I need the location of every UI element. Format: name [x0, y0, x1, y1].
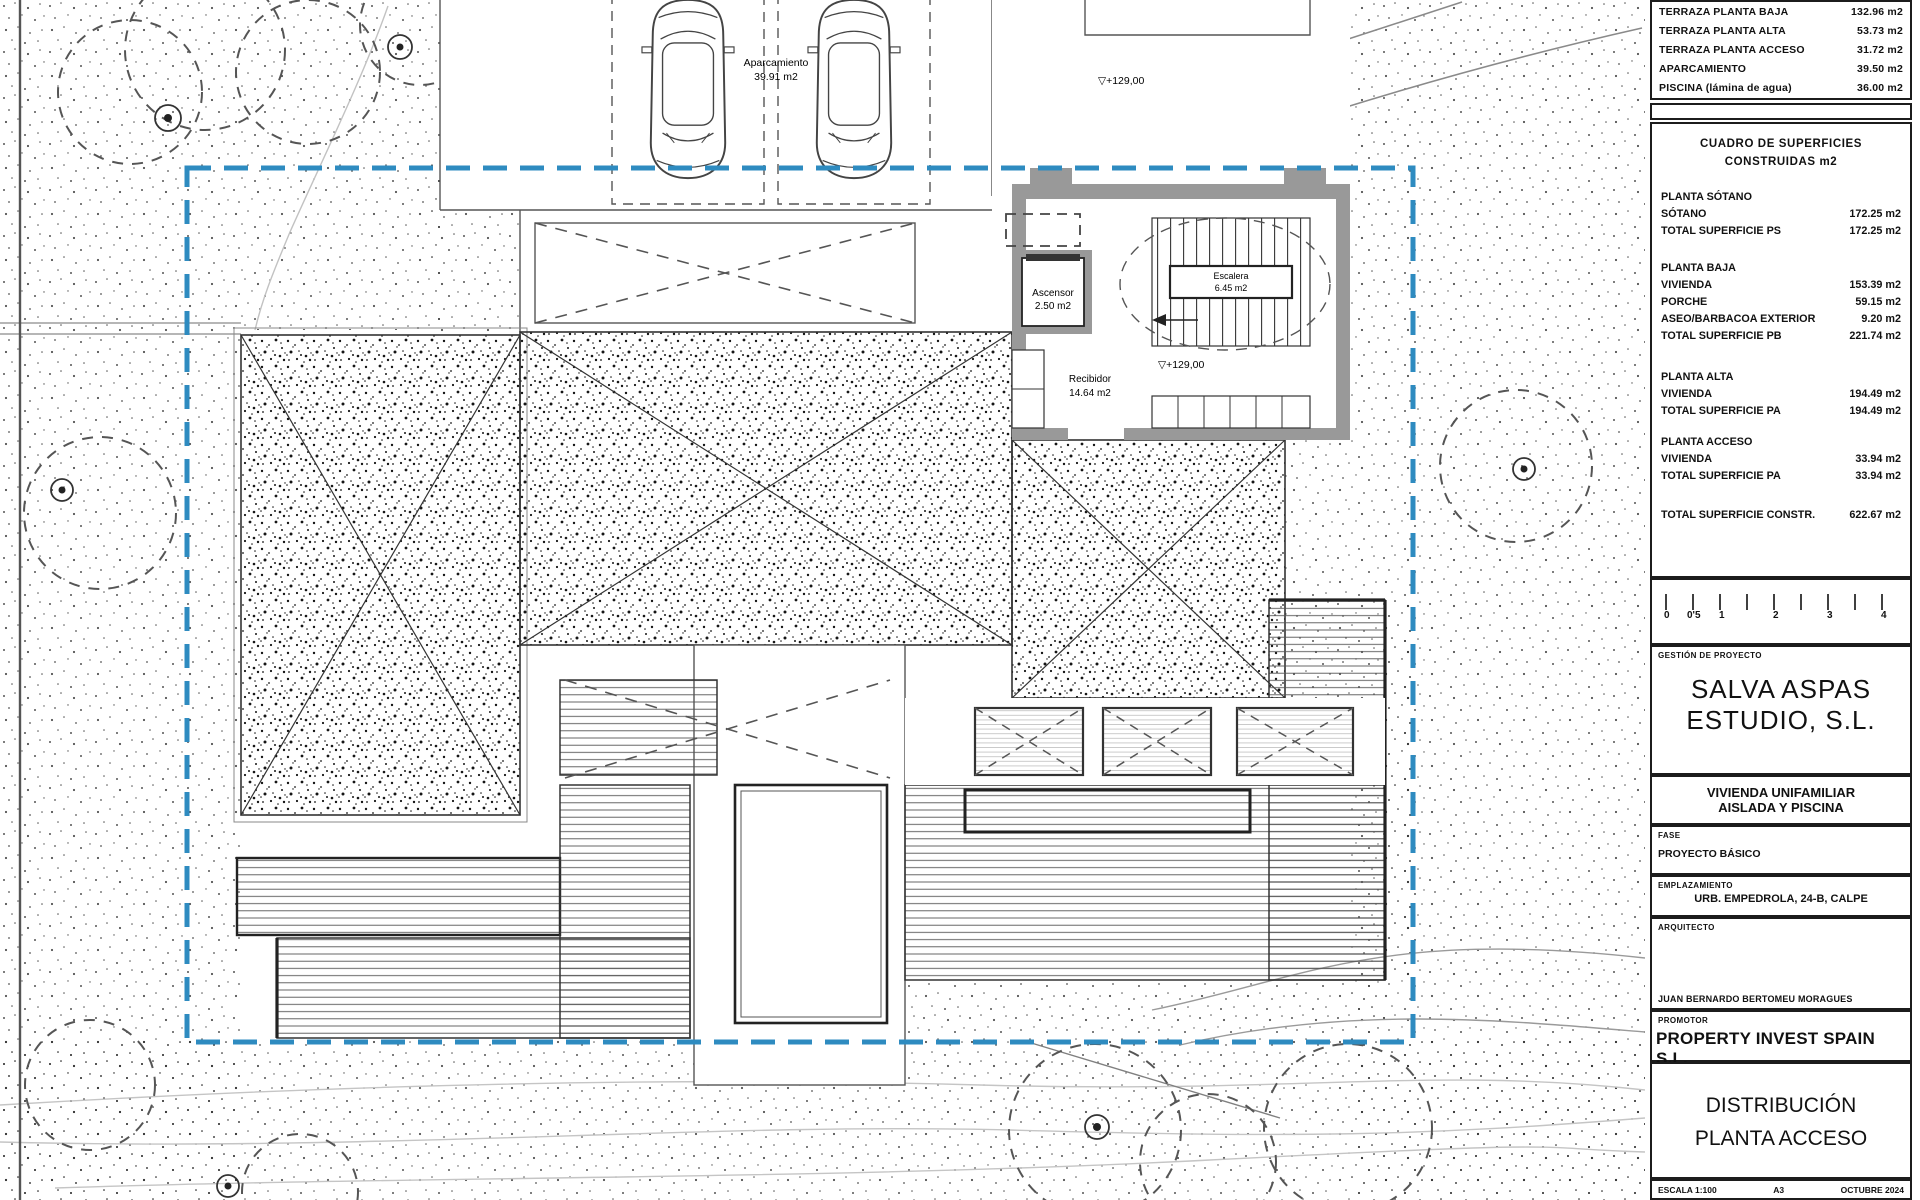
section-header: PLANTA SÓTANO: [1652, 188, 1910, 205]
cuadro-title: CUADRO DE SUPERFICIES: [1652, 138, 1910, 150]
terrace-surface-table: TERRAZA PLANTA BAJA132.96 m2 TERRAZA PLA…: [1650, 0, 1912, 100]
recibidor-label: Recibidor: [1069, 374, 1112, 385]
escalera-label: Escalera: [1213, 271, 1248, 281]
footer-date: OCTUBRE 2024: [1841, 1185, 1904, 1195]
car-top-view-2: [808, 0, 900, 178]
site-plan-svg: Aparcamiento 39.91 m2 ▽+129,00 ▽: [0, 0, 1645, 1200]
location-section: EMPLAZAMIENTO URB. EMPEDROLA, 24-B, CALP…: [1650, 875, 1912, 917]
arquitecto-value: JUAN BERNARDO BERTOMEU MORAGUES: [1658, 994, 1853, 1004]
title-block: TERRAZA PLANTA BAJA132.96 m2 TERRAZA PLA…: [1645, 0, 1920, 1200]
deck-strip-upper: [237, 858, 560, 935]
arquitecto-label: ARQUITECTO: [1652, 919, 1910, 932]
escalera-area: 6.45 m2: [1215, 283, 1248, 293]
section-header: PLANTA ALTA: [1652, 368, 1910, 385]
aparcamiento-area: 39.91 m2: [754, 71, 798, 83]
phase-section: FASE PROYECTO BÁSICO: [1650, 825, 1912, 875]
section-header: PLANTA BAJA: [1652, 259, 1910, 276]
ascensor-area: 2.50 m2: [1035, 301, 1072, 312]
built-surfaces-table: CUADRO DE SUPERFICIES CONSTRUIDAS m2 PLA…: [1650, 122, 1912, 578]
emplazamiento-value: URB. EMPEDROLA, 24-B, CALPE: [1652, 893, 1910, 905]
elevator: Ascensor 2.50 m2: [1014, 250, 1092, 334]
footer-format: A3: [1773, 1185, 1784, 1195]
entrance-block: Ascensor 2.50 m2 Escalera 6.45 m2 ▽+129,…: [1006, 168, 1350, 440]
skylight-row: [905, 698, 1385, 785]
footer-scale: ESCALA 1:100: [1658, 1185, 1717, 1195]
scale-bar: 0 0'5 1 2 3 4: [1650, 578, 1912, 645]
deck-upper-left: [560, 680, 717, 775]
drawing-sheet: Aparcamiento 39.91 m2 ▽+129,00 ▽: [0, 0, 1920, 1200]
site-plan: Aparcamiento 39.91 m2 ▽+129,00 ▽: [0, 0, 1645, 1200]
table-row: PISCINA (lámina de agua)36.00 m2: [1652, 78, 1910, 97]
emplazamiento-label: EMPLAZAMIENTO: [1652, 877, 1910, 890]
table-row: TERRAZA PLANTA ALTA53.73 m2: [1652, 21, 1910, 40]
table-row: TERRAZA PLANTA ACCESO31.72 m2: [1652, 40, 1910, 59]
section-header: PLANTA ACCESO: [1652, 433, 1910, 450]
sheet-title: DISTRIBUCIÓN PLANTA ACCESO: [1650, 1062, 1912, 1179]
car-top-view-1: [642, 0, 734, 178]
sheet-footer: ESCALA 1:100 A3 OCTUBRE 2024: [1650, 1179, 1912, 1200]
table-row: TERRAZA PLANTA BAJA132.96 m2: [1652, 2, 1910, 21]
table-row: APARCAMIENTO39.50 m2: [1652, 59, 1910, 78]
plaza-level-label: ▽+129,00: [1098, 75, 1144, 87]
total-row: TOTAL SUPERFICIE CONSTR.622.67 m2: [1652, 506, 1910, 523]
gestion-label: GESTIÓN DE PROYECTO: [1652, 647, 1910, 660]
roof-block-left: [234, 328, 527, 822]
project-management: GESTIÓN DE PROYECTO SALVA ASPAS ESTUDIO,…: [1650, 645, 1912, 775]
pool: [735, 785, 887, 1023]
architect-section: ARQUITECTO JUAN BERNARDO BERTOMEU MORAGU…: [1650, 917, 1912, 1010]
hall-level-label: ▽+129,00: [1158, 359, 1204, 371]
deck-column-right: [1269, 600, 1385, 980]
stairs: Escalera 6.45 m2: [1120, 218, 1330, 350]
developer-section: PROMOTOR PROPERTY INVEST SPAIN S.L.: [1650, 1010, 1912, 1062]
ramp: [535, 223, 915, 323]
roof-block-center: [520, 332, 1012, 645]
cuadro-subtitle: CONSTRUIDAS m2: [1652, 156, 1910, 168]
project-title: VIVIENDA UNIFAMILIAR AISLADA Y PISCINA: [1650, 775, 1912, 825]
promotor-label: PROMOTOR: [1652, 1012, 1910, 1025]
ascensor-label: Ascensor: [1032, 288, 1074, 299]
roof-block-right: [1012, 440, 1285, 698]
company-name: SALVA ASPAS ESTUDIO, S.L.: [1652, 674, 1910, 736]
deck-column-left: [560, 785, 690, 1038]
aparcamiento-label: Aparcamiento: [744, 57, 809, 69]
fase-label: FASE: [1652, 827, 1910, 840]
table-divider-strip: [1650, 103, 1912, 120]
fase-value: PROYECTO BÁSICO: [1652, 840, 1910, 860]
recibidor-area: 14.64 m2: [1069, 388, 1111, 399]
